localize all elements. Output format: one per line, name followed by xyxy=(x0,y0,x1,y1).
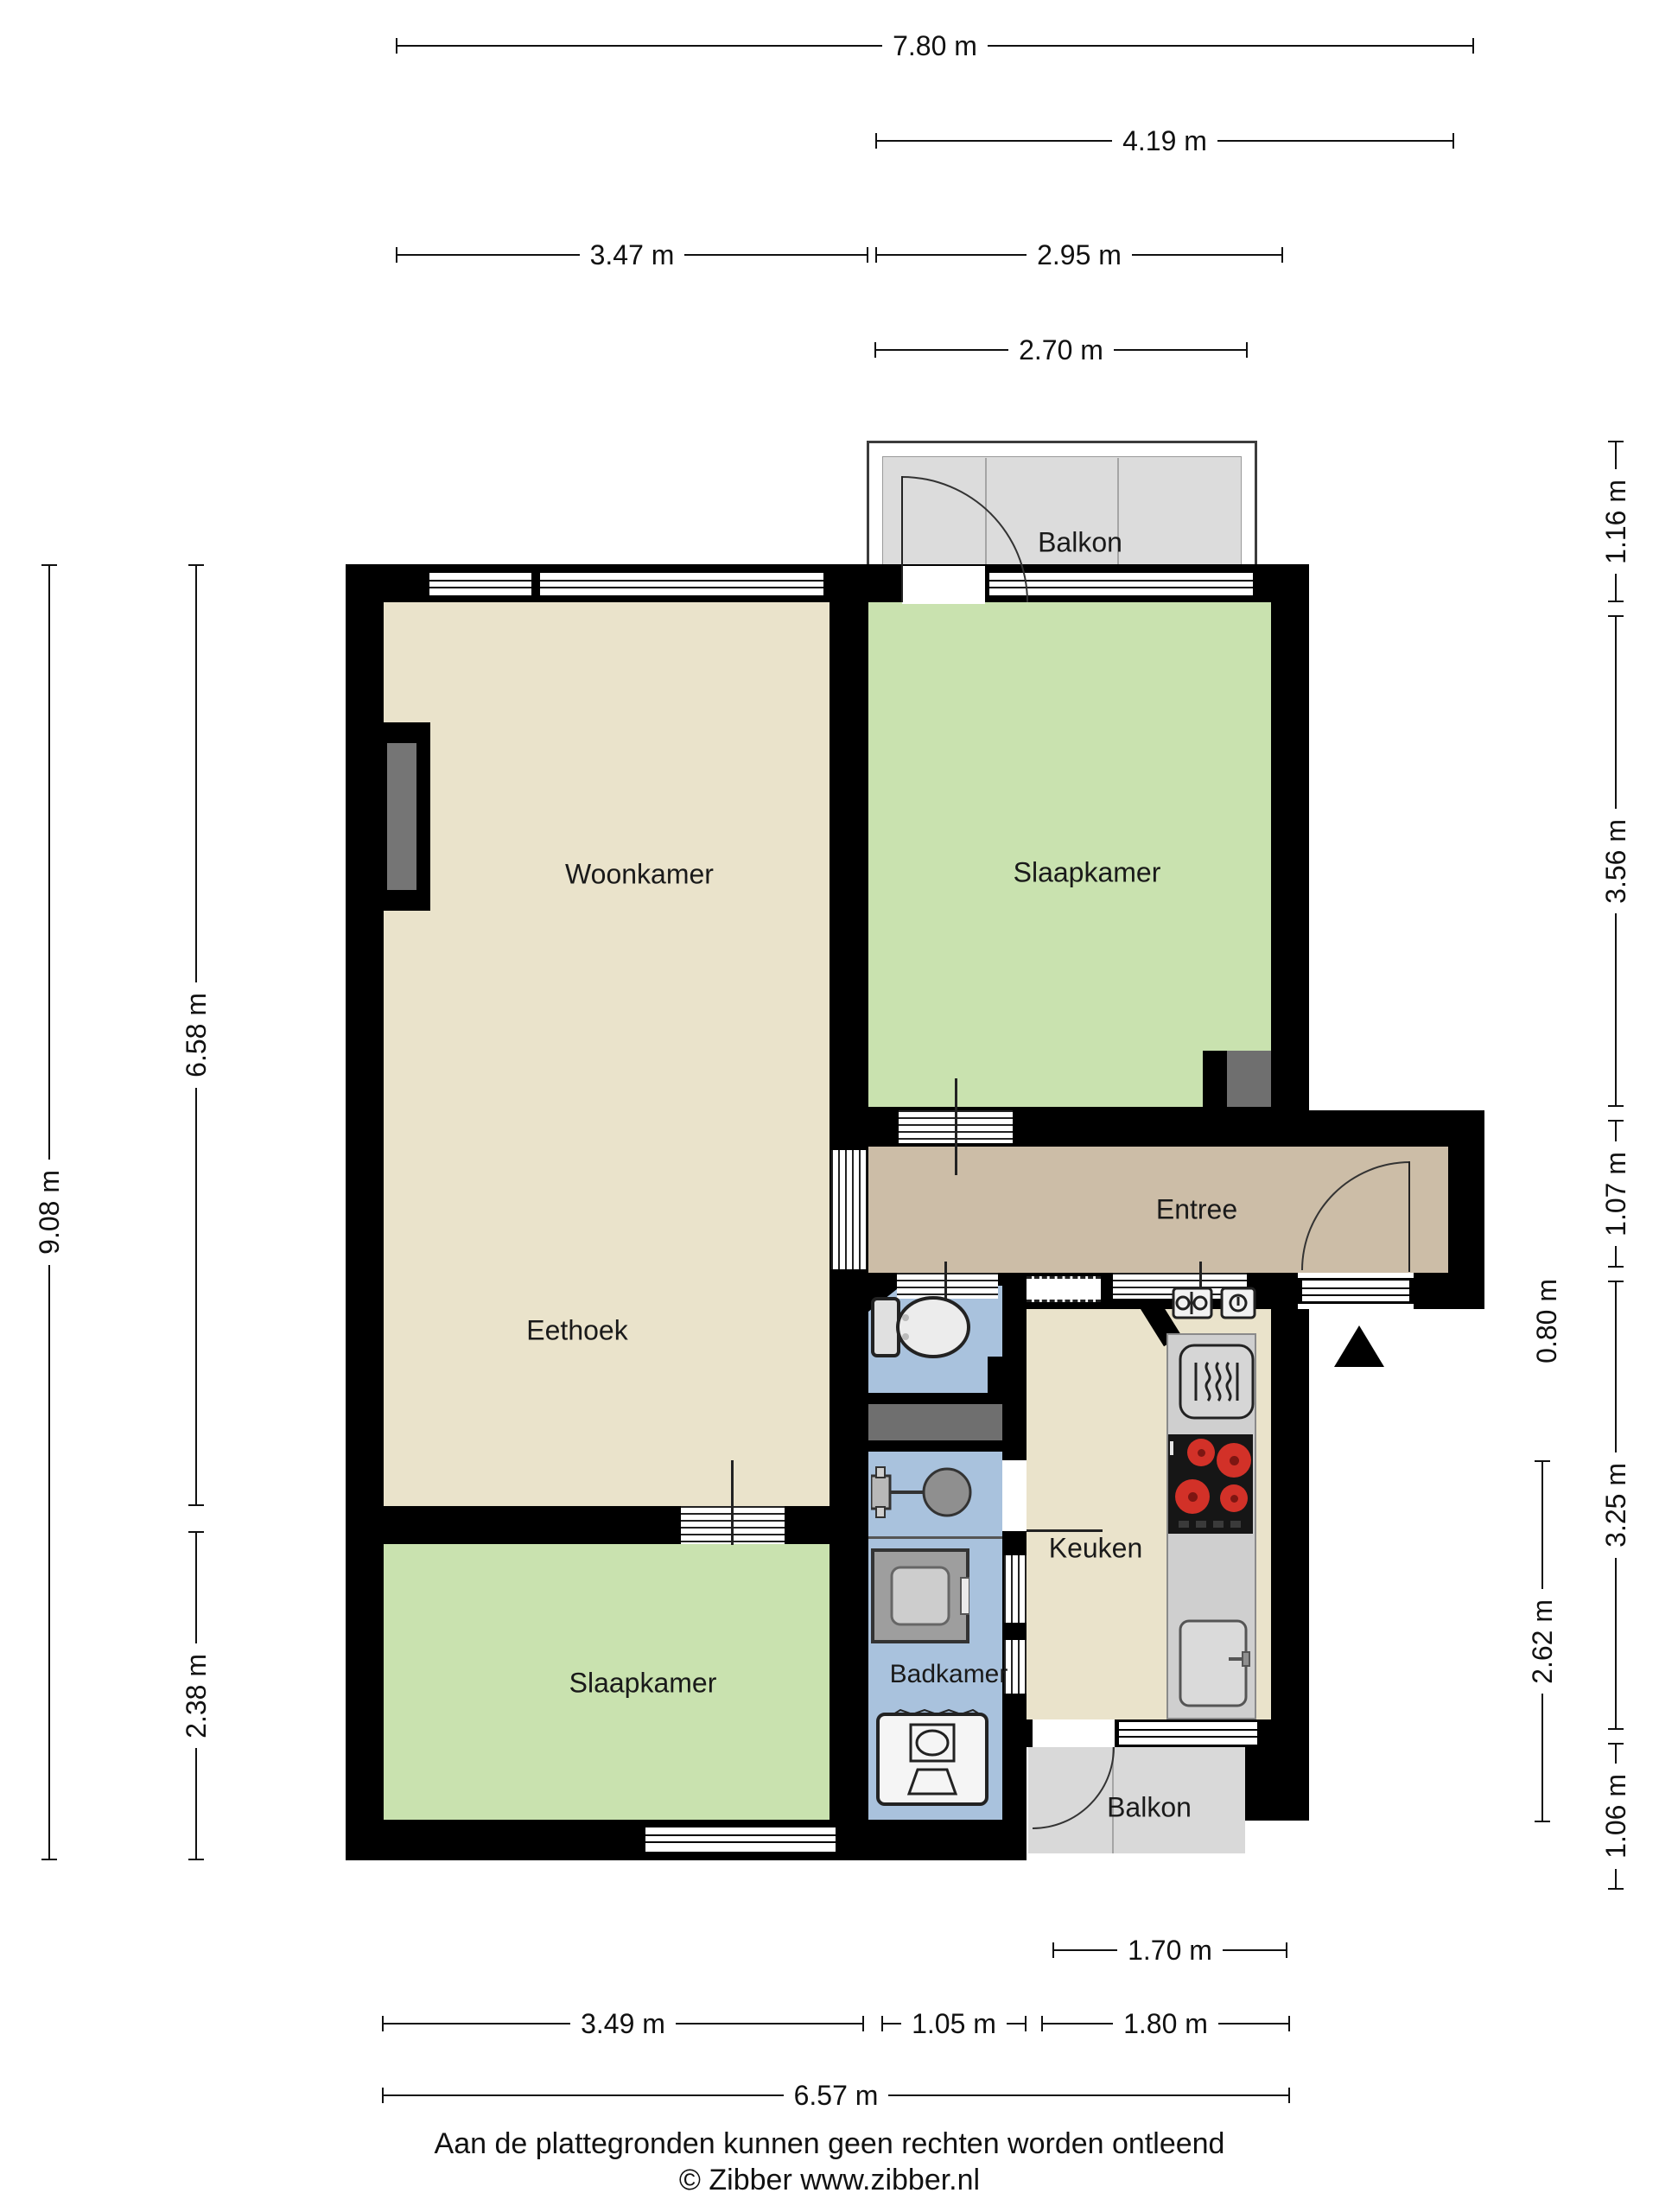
dimension-6-57: 6.57 m xyxy=(382,2081,1290,2110)
footer-credit: © Zibber www.zibber.nl xyxy=(0,2164,1659,2197)
toilet-icon xyxy=(871,1292,975,1363)
dimension-9-08: 9.08 m xyxy=(35,564,64,1860)
wall-kitchen-right xyxy=(1271,1273,1309,1821)
dimension-3-56: 3.56 m xyxy=(1601,615,1630,1107)
toilet-notch xyxy=(988,1357,1002,1393)
dimension-2-62: 2.62 m xyxy=(1528,1460,1557,1822)
badkamer-keuken-pass-strip xyxy=(1004,1555,1027,1623)
wall-right-upper xyxy=(1271,564,1309,1147)
dimension-3-49: 3.49 m xyxy=(382,2009,864,2038)
room-slaapkamer-rechts xyxy=(868,602,1271,1107)
dimension-1-80: 1.80 m xyxy=(1041,2009,1290,2038)
dimension-3-47: 3.47 m xyxy=(396,240,868,270)
window-slaapkamer-links xyxy=(641,1825,840,1854)
cooktop-icon xyxy=(1168,1434,1253,1534)
room-label-slaapkamer-rechts: Slaapkamer xyxy=(1014,857,1161,889)
window-keuken xyxy=(1115,1719,1262,1747)
dimension-0-80: 0.80 m xyxy=(1531,1279,1563,1363)
dimension-6-58: 6.58 m xyxy=(181,564,211,1506)
dimension-1-70: 1.70 m xyxy=(1052,1935,1287,1965)
room-label-slaapkamer-links: Slaapkamer xyxy=(569,1668,717,1700)
dimension-2-38: 2.38 m xyxy=(181,1531,211,1860)
bedroom-shaft-wall xyxy=(1203,1051,1227,1107)
room-label-balkon-onder: Balkon xyxy=(1107,1792,1192,1824)
footer-disclaimer: Aan de plattegronden kunnen geen rechten… xyxy=(0,2127,1659,2161)
badkamer-door-opening xyxy=(1002,1460,1027,1531)
dimension-7-80: 7.80 m xyxy=(396,31,1474,60)
door-mark xyxy=(955,1078,957,1175)
shower-icon xyxy=(871,1548,969,1643)
north-arrow-icon xyxy=(1334,1325,1384,1367)
wall-balcony-corner xyxy=(1242,1747,1271,1821)
room-label-balkon-top: Balkon xyxy=(1038,527,1122,559)
passage-woonkamer-entree xyxy=(831,1150,867,1269)
balcony-bottom-door-opening xyxy=(1033,1719,1115,1747)
wall-left xyxy=(346,564,384,1860)
wall-toilet-shaft-top xyxy=(868,1393,1002,1404)
window-mullion xyxy=(531,570,540,598)
door-leaf xyxy=(901,476,903,602)
room-label-badkamer: Badkamer xyxy=(890,1660,1008,1689)
dimension-2-95: 2.95 m xyxy=(875,240,1283,270)
room-label-woonkamer: Woonkamer xyxy=(565,859,714,891)
oven-icon xyxy=(1177,1342,1256,1421)
dimension-4-19: 4.19 m xyxy=(875,126,1454,156)
small-appliances-icon xyxy=(1172,1280,1258,1323)
dimension-1-06: 1.06 m xyxy=(1601,1743,1630,1890)
room-label-eethoek: Eethoek xyxy=(526,1315,627,1347)
door-leaf xyxy=(1408,1161,1410,1272)
dimension-1-16: 1.16 m xyxy=(1601,441,1630,602)
shaft xyxy=(868,1404,1002,1440)
room-label-entree: Entree xyxy=(1156,1194,1237,1226)
wall-bathroom-kitchen xyxy=(1002,1286,1027,1821)
chimney-niche-inner xyxy=(387,743,416,890)
dimension-3-25: 3.25 m xyxy=(1601,1281,1630,1730)
dimension-2-70: 2.70 m xyxy=(874,335,1248,365)
bedroom-shaft xyxy=(1227,1051,1271,1107)
door-mark xyxy=(731,1460,734,1545)
shower-screen-line xyxy=(868,1536,1002,1539)
window-woonkamer xyxy=(425,570,828,598)
washing-machine-icon xyxy=(876,1709,988,1808)
dimension-1-07: 1.07 m xyxy=(1601,1120,1630,1268)
opening-entree-keuken-dashed xyxy=(1027,1276,1101,1302)
room-woonkamer xyxy=(384,602,829,1506)
room-label-keuken: Keuken xyxy=(1049,1533,1143,1565)
washbasin-icon xyxy=(871,1459,976,1526)
dimension-1-05: 1.05 m xyxy=(881,2009,1027,2038)
wall-shaft-bathroom xyxy=(868,1440,1002,1452)
kitchen-sink-icon xyxy=(1175,1614,1253,1714)
floorplan-canvas: Balkon Woonkamer Slaapkamer Entree Eetho… xyxy=(0,0,1659,2212)
front-door-sill xyxy=(1298,1278,1414,1304)
